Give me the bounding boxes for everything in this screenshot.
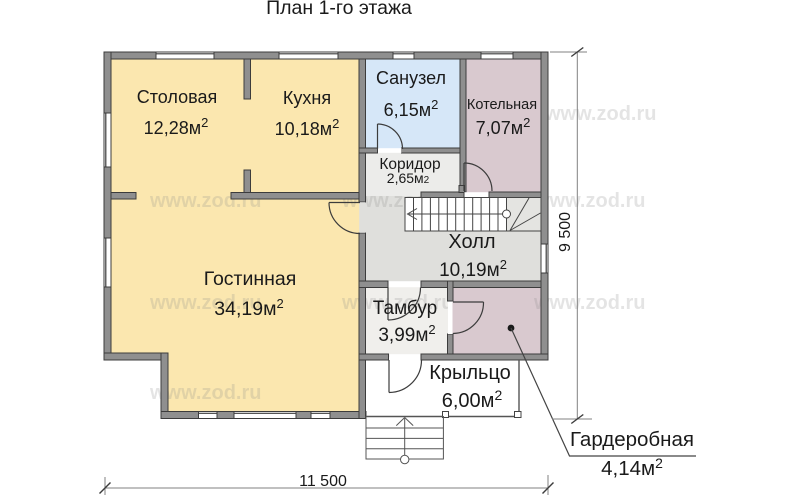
svg-text:Гардеробная: Гардеробная <box>570 428 694 451</box>
svg-text:10,18м2: 10,18м2 <box>275 116 340 139</box>
svg-text:Санузел: Санузел <box>376 68 446 88</box>
svg-text:www.zod.ru: www.zod.ru <box>533 190 645 212</box>
svg-text:Столовая: Столовая <box>137 87 218 107</box>
svg-text:6,00м2: 6,00м2 <box>442 387 503 412</box>
svg-text:2,65м2: 2,65м2 <box>387 170 430 186</box>
svg-text:План 1-го этажа: План 1-го этажа <box>266 0 412 19</box>
svg-text:3,99м2: 3,99м2 <box>378 322 435 346</box>
svg-text:Котельная: Котельная <box>467 97 537 113</box>
svg-text:Холл: Холл <box>448 231 495 253</box>
svg-text:Крыльцо: Крыльцо <box>429 362 511 384</box>
svg-text:Кухня: Кухня <box>283 88 331 108</box>
svg-text:34,19м2: 34,19м2 <box>214 296 283 320</box>
svg-text:9 500: 9 500 <box>557 212 574 252</box>
svg-text:4,14м2: 4,14м2 <box>601 455 663 480</box>
svg-text:Тамбур: Тамбур <box>373 298 438 319</box>
svg-text:Гостинная: Гостинная <box>204 268 297 290</box>
svg-text:11 500: 11 500 <box>299 473 347 490</box>
svg-text:www.zod.ru: www.zod.ru <box>533 292 645 314</box>
svg-text:6,15м2: 6,15м2 <box>384 97 439 120</box>
svg-text:10,19м2: 10,19м2 <box>439 257 507 281</box>
svg-text:7,07м2: 7,07м2 <box>476 115 531 138</box>
svg-text:12,28м2: 12,28м2 <box>144 115 209 138</box>
svg-text:www.zod.ru: www.zod.ru <box>544 103 656 125</box>
